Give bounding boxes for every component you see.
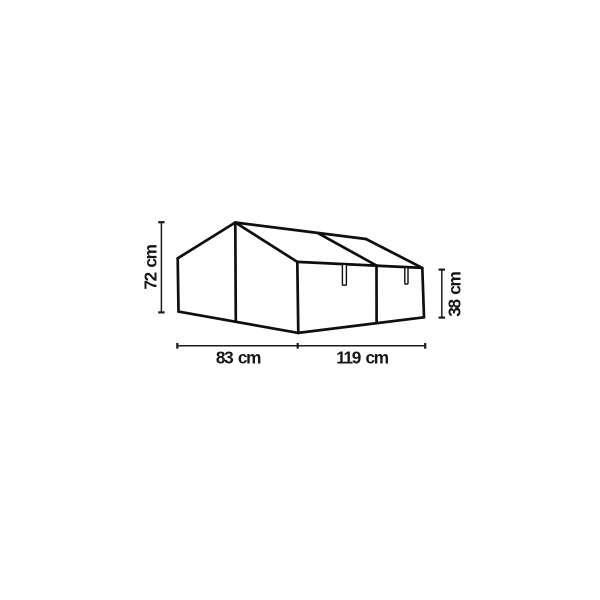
svg-text:72 cm: 72 cm <box>141 244 161 289</box>
svg-text:119 cm: 119 cm <box>336 347 389 367</box>
svg-text:38 cm: 38 cm <box>445 271 465 316</box>
svg-text:83 cm: 83 cm <box>216 348 261 368</box>
